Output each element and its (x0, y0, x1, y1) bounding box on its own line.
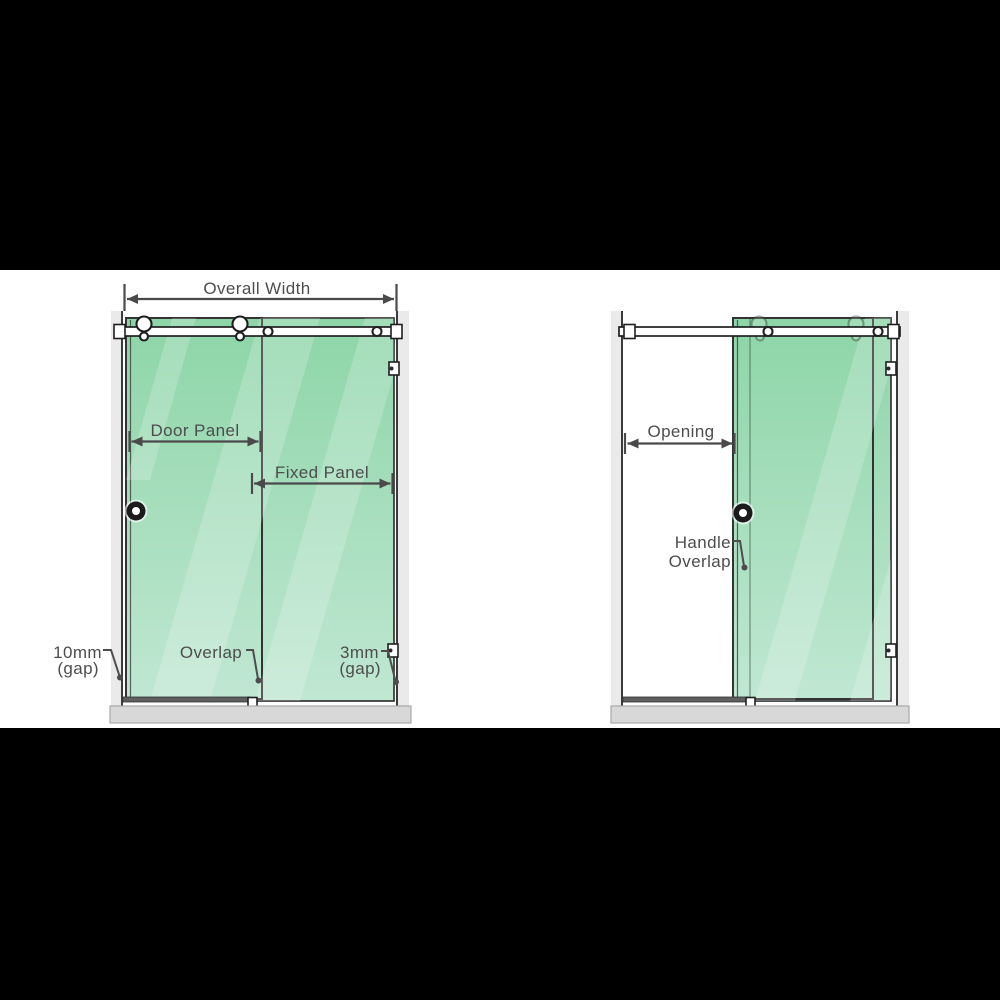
handle-overlap-line1: Handle (675, 533, 731, 552)
overall-width-label: Overall Width (203, 279, 310, 298)
opening-label: Opening (647, 422, 714, 441)
door-handle-knob (732, 502, 755, 525)
left-gap-unit: (gap) (57, 659, 99, 678)
handle-overlap-line2: Overlap (669, 552, 731, 571)
left-wall-strip (111, 311, 122, 707)
rail-bracket-right (391, 325, 402, 339)
shower-screen-diagram: Overall Width Door Panel Fixed Panel 10m… (0, 0, 1000, 1000)
screenshot-canvas: Overall Width Door Panel Fixed Panel 10m… (0, 0, 1000, 1000)
rail-bracket-right (888, 325, 899, 339)
bottom-track (623, 697, 748, 702)
rail-bracket-left (114, 325, 125, 339)
door-panel-label: Door Panel (150, 421, 239, 440)
top-rail (619, 327, 900, 336)
floor-tray (110, 706, 411, 723)
top-rail (119, 327, 400, 336)
rail-bracket-left (624, 325, 635, 339)
right-wall-strip (898, 311, 909, 707)
bottom-track (123, 697, 250, 702)
fixed-panel-label: Fixed Panel (275, 463, 369, 482)
right-gap-unit: (gap) (339, 659, 381, 678)
door-handle-knob (125, 500, 148, 523)
overlap-label: Overlap (180, 643, 242, 662)
left-wall-strip (611, 311, 622, 707)
floor-tray (611, 706, 909, 723)
